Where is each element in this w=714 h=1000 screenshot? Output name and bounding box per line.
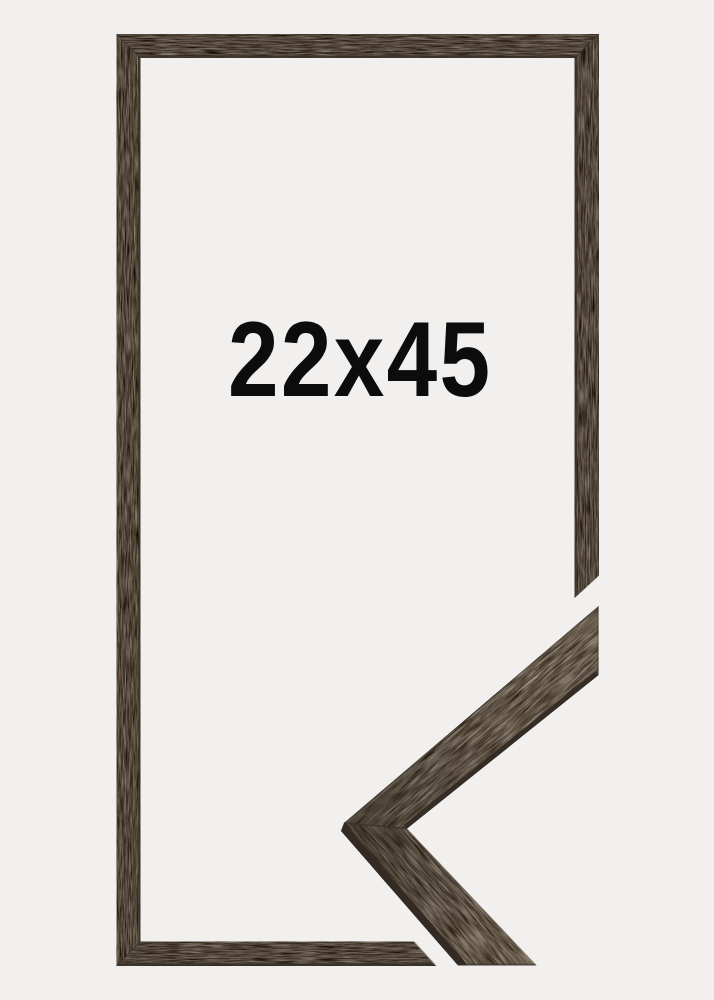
svg-text:22x45: 22x45: [228, 300, 492, 420]
